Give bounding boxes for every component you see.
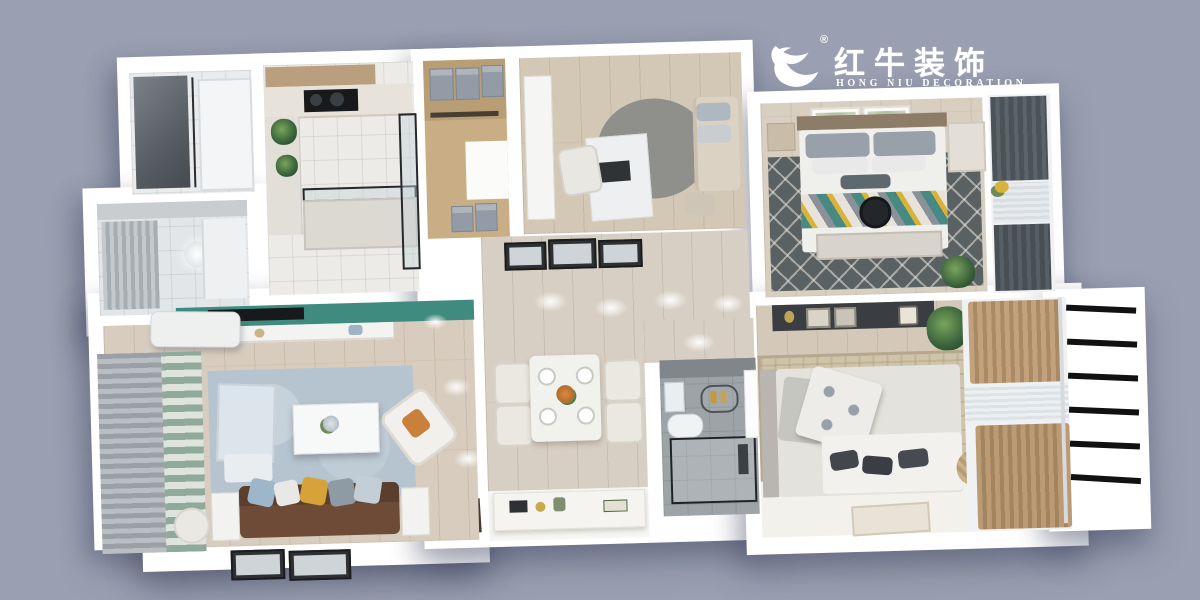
bedroom-1-plant: [941, 256, 976, 289]
tan-curtain-bundle: [968, 299, 1062, 384]
study-laptop: [597, 160, 631, 183]
balcony-dark-blind: [994, 224, 1052, 292]
bedroom-1-pillow-gray: [873, 131, 936, 157]
entry-closet-white-cabinet: [465, 141, 509, 200]
brand-logo: ® 红牛装饰 HONG NIU DECORATION: [768, 34, 996, 100]
bedroom-1-pillow-white: [872, 155, 926, 173]
dining-chair: [495, 404, 534, 447]
storage-box: [475, 203, 498, 232]
bedroom-1-pillow-gray: [805, 133, 870, 159]
sofa-side-table: [401, 487, 430, 536]
air-conditioner-unit: [150, 311, 240, 348]
brand-name-zh: 红牛装饰: [834, 38, 994, 83]
dining-chair: [493, 362, 532, 405]
gallery-wall-frame: [548, 238, 597, 269]
sideboard-decor: [553, 497, 565, 511]
sideboard-decor: [509, 500, 527, 512]
shelf-decor-clock: [898, 305, 919, 326]
bedroom-1-accent-pillow: [840, 174, 890, 189]
bedroom-2-door: [744, 370, 760, 438]
bathroom-1-bathtub: [197, 78, 254, 191]
dining-chair: [605, 401, 644, 444]
bathroom-3-sink: [667, 413, 704, 438]
sofa-pillow-gray: [327, 477, 357, 507]
sofa-pillow-floral: [246, 477, 277, 508]
quilted-floor-cushion: [216, 383, 276, 462]
sofa-side-table: [211, 492, 240, 541]
study-ottoman: [684, 191, 717, 217]
leaning-floor-frame: [289, 549, 352, 581]
balcony-dark-blind: [990, 96, 1048, 182]
storage-box: [481, 65, 504, 98]
storage-box: [451, 206, 474, 233]
bedroom-1-bench-right: [947, 121, 986, 172]
bathroom-3-wall-band: [659, 358, 755, 379]
leaning-floor-frame: [231, 549, 286, 580]
bedroom-1-foot-bench: [816, 231, 943, 261]
tan-curtain-bundle: [975, 423, 1072, 530]
window-curtain-gray: [97, 352, 167, 554]
bathroom-3-towel: [710, 391, 716, 403]
bedroom-1-nightstand: [767, 123, 796, 152]
apartment-floor-plan: [51, 29, 1157, 591]
bedroom-1-pillow-white: [812, 157, 868, 175]
sideboard-decor: [603, 499, 627, 512]
bathroom-2-vanity: [201, 218, 247, 299]
sheer-curtain: [964, 383, 1069, 424]
study-chair: [556, 144, 603, 198]
kitchen-plant: [276, 154, 299, 177]
brand-name-en: HONG NIU DECORATION: [836, 78, 1026, 89]
kitchen-plant: [271, 119, 298, 146]
sofa-pillow-lightblue: [353, 475, 383, 505]
bathroom-3-shower-caddy: [738, 444, 749, 474]
bedroom-2-dark-pillow: [862, 455, 893, 475]
storage-box: [429, 68, 454, 101]
registered-mark: ®: [820, 34, 828, 46]
console-decor: [348, 325, 362, 335]
bathroom-3-towel-ring: [700, 384, 739, 413]
bedroom-2-floor-tray: [851, 502, 931, 537]
dining-chair: [603, 359, 642, 402]
shelf-decor-frame: [834, 307, 857, 328]
gallery-wall-frame: [598, 239, 643, 268]
rug-throw-blanket: [224, 453, 273, 482]
shelf-decor-frame: [806, 308, 831, 329]
gallery-wall-frame: [504, 242, 547, 271]
bathroom-3-towel: [720, 391, 726, 403]
render-background: { "canvas": {"width": 1200, "height": 60…: [0, 0, 1200, 600]
bedroom-2-dark-pillow: [897, 448, 929, 469]
study-sofa-pillow: [697, 124, 731, 143]
bull-swoosh-icon: [768, 40, 826, 94]
study-wardrobe: [523, 75, 555, 220]
study-sofa-pillow: [696, 102, 730, 121]
sofa-pillow-white: [273, 479, 301, 507]
bathroom-3-mirror: [664, 382, 685, 413]
storage-box: [455, 67, 480, 100]
bathroom-1-dark-marble-panel: [133, 76, 190, 189]
sofa-pillow-yellow: [299, 476, 329, 506]
bathroom-2-shower-curtain: [101, 220, 159, 310]
